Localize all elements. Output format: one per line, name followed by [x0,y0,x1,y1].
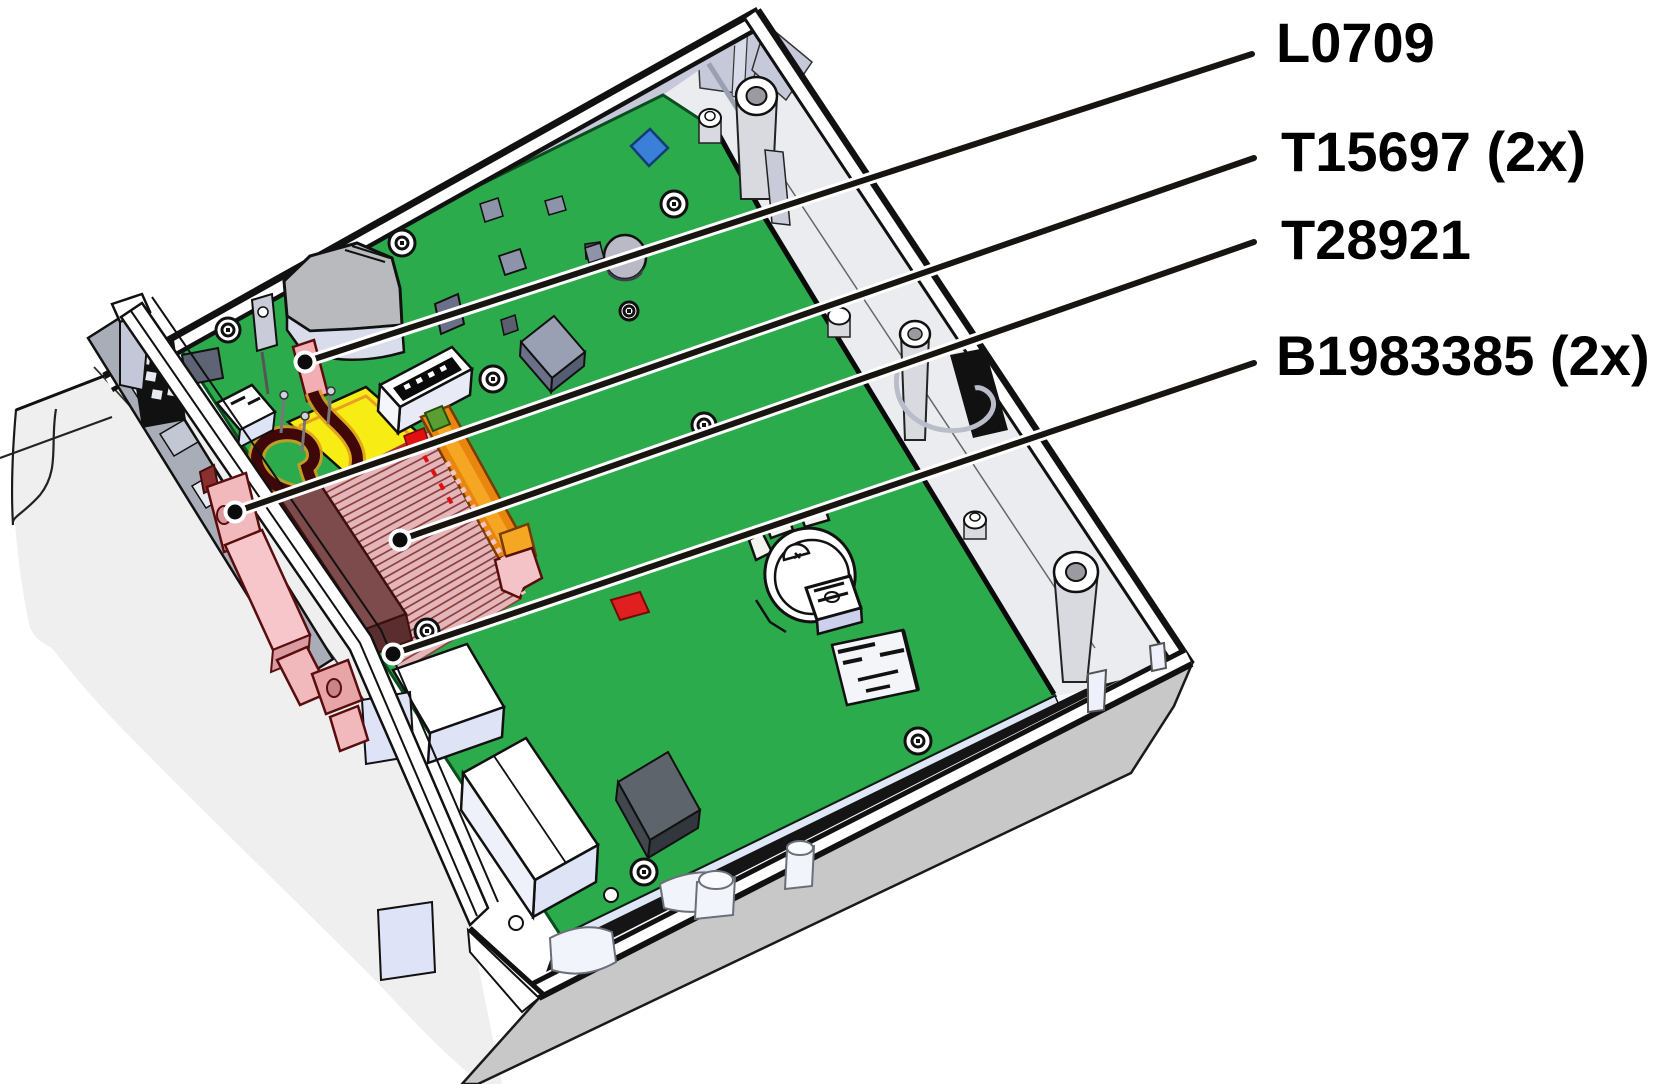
svg-text:L0709: L0709 [1276,11,1435,74]
svg-text:B1983385 (2x): B1983385 (2x) [1276,324,1650,387]
svg-text:T15697 (2x): T15697 (2x) [1281,120,1586,183]
svg-text:T28921: T28921 [1281,208,1471,271]
